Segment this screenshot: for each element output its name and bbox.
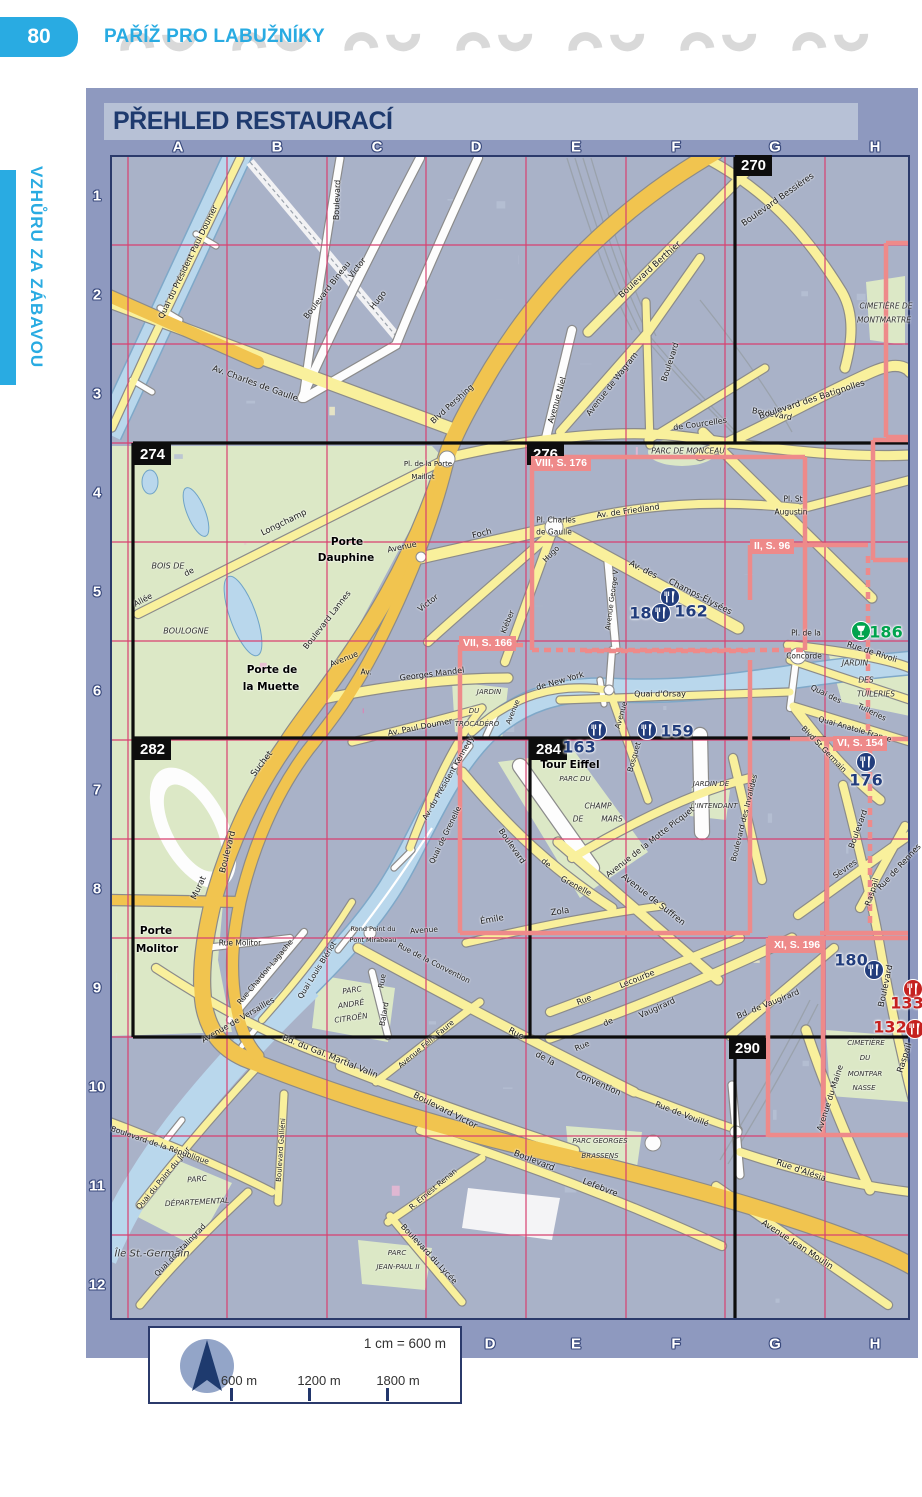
guidebook-page: 80 PAŘÍŽ PRO LABUŽNÍKY VZHŮRU ZA ZÁBAVOU… (0, 0, 922, 1497)
map-title: PŘEHLED RESTAURACÍ (113, 103, 392, 140)
scale-box: 1 cm = 600 m 600 m1200 m1800 m (148, 1326, 462, 1404)
croissant-icon (791, 30, 827, 51)
scale-tick (386, 1388, 389, 1401)
croissant-icon (386, 34, 421, 52)
croissant-icon (679, 30, 715, 51)
map-title-bar: PŘEHLED RESTAURACÍ (104, 103, 858, 140)
croissant-icon (567, 30, 603, 51)
croissant-icon (610, 34, 645, 52)
page-number: 80 (27, 25, 50, 49)
scale-ratio-label: 1 cm = 600 m (364, 1336, 446, 1351)
chapter-title: PAŘÍŽ PRO LABUŽNÍKY (104, 26, 325, 48)
scale-tick (308, 1388, 311, 1401)
scale-tick (230, 1388, 233, 1401)
page-number-tab: 80 (0, 17, 78, 57)
croissant-icon (343, 30, 379, 51)
scale-tick-label: 600 m (221, 1373, 257, 1388)
croissant-icon (722, 34, 757, 52)
croissant-icon (834, 34, 869, 52)
scale-tick-label: 1200 m (297, 1373, 340, 1388)
croissant-icon (498, 34, 533, 52)
croissant-icon (455, 30, 491, 51)
map-canvas (0, 0, 922, 1497)
scale-tick-label: 1800 m (376, 1373, 419, 1388)
